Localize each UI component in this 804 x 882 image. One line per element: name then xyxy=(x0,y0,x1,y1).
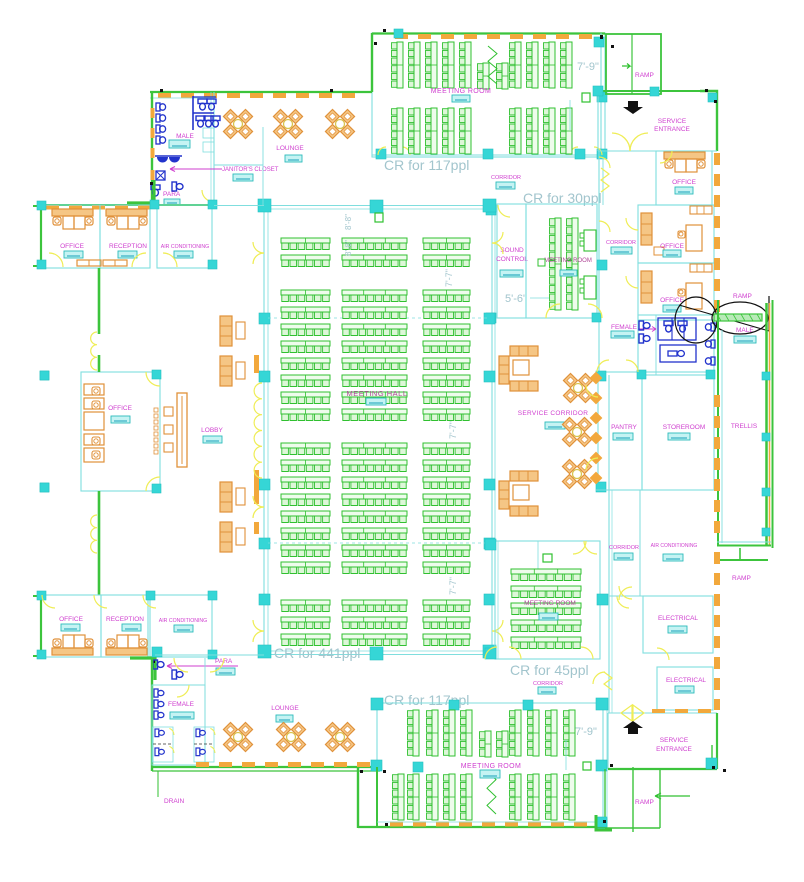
svg-text:CORRIDOR: CORRIDOR xyxy=(609,545,639,551)
svg-text:TRELLIS: TRELLIS xyxy=(731,423,758,430)
svg-text:8'-8": 8'-8" xyxy=(344,214,353,230)
svg-text:FEMALE: FEMALE xyxy=(611,324,638,331)
svg-text:PANTRY: PANTRY xyxy=(611,424,637,431)
svg-text:7'-9": 7'-9" xyxy=(575,726,597,738)
svg-text:5'-6": 5'-6" xyxy=(505,293,527,305)
svg-text:7'-9": 7'-9" xyxy=(577,61,599,73)
svg-text:OFFICE: OFFICE xyxy=(60,243,84,250)
svg-text:AIR CONDITIONING: AIR CONDITIONING xyxy=(161,244,209,250)
svg-text:SOUND: SOUND xyxy=(500,247,524,254)
svg-text:OFFICE: OFFICE xyxy=(108,405,132,412)
svg-text:FEMALE: FEMALE xyxy=(168,701,195,708)
svg-text:MEETING ROOM: MEETING ROOM xyxy=(524,600,576,607)
svg-text:SERVICE: SERVICE xyxy=(658,118,687,125)
svg-text:RAMP: RAMP xyxy=(732,575,751,582)
svg-text:CR for 45ppl: CR for 45ppl xyxy=(510,662,589,678)
svg-text:RAMP: RAMP xyxy=(635,72,654,79)
svg-text:AIR CONDITIONING: AIR CONDITIONING xyxy=(159,618,207,624)
svg-text:RECEPTION: RECEPTION xyxy=(106,616,144,623)
svg-text:CR for 117ppl: CR for 117ppl xyxy=(384,157,469,173)
svg-text:JANITOR'S CLOSET: JANITOR'S CLOSET xyxy=(222,167,279,173)
svg-text:CONTROL: CONTROL xyxy=(496,256,528,263)
svg-text:8'-8": 8'-8" xyxy=(344,240,353,256)
svg-text:LOUNGE: LOUNGE xyxy=(271,705,299,712)
svg-text:LOUNGE: LOUNGE xyxy=(276,145,304,152)
svg-text:MEETING ROOM: MEETING ROOM xyxy=(431,88,491,95)
svg-text:RAMP: RAMP xyxy=(635,799,654,806)
svg-text:7'-7": 7'-7" xyxy=(448,421,458,439)
svg-text:7'-7": 7'-7" xyxy=(448,577,458,595)
svg-text:CR for 441ppl: CR for 441ppl xyxy=(274,645,360,661)
svg-text:LOBBY: LOBBY xyxy=(201,427,223,434)
svg-text:MEETING ROOM: MEETING ROOM xyxy=(544,258,592,264)
svg-text:DRAIN: DRAIN xyxy=(164,798,185,805)
svg-text:ENTRANCE: ENTRANCE xyxy=(656,746,692,753)
svg-text:SERVICE CORRIDOR: SERVICE CORRIDOR xyxy=(518,410,588,417)
svg-text:ENTRANCE: ENTRANCE xyxy=(654,126,690,133)
svg-text:STOREROOM: STOREROOM xyxy=(663,424,706,431)
svg-text:CORRIDOR: CORRIDOR xyxy=(606,240,636,246)
svg-text:OFFICE: OFFICE xyxy=(59,616,83,623)
svg-text:OFFICE: OFFICE xyxy=(660,297,684,304)
svg-text:PARA: PARA xyxy=(163,191,181,198)
svg-text:ELECTRICAL: ELECTRICAL xyxy=(658,615,698,622)
svg-text:OFFICE: OFFICE xyxy=(660,243,684,250)
svg-text:7'-7": 7'-7" xyxy=(444,269,454,287)
svg-text:MALE: MALE xyxy=(176,133,194,140)
svg-text:MEETING HALL: MEETING HALL xyxy=(346,389,407,398)
svg-text:MEETING ROOM: MEETING ROOM xyxy=(461,763,521,770)
svg-text:SERVICE: SERVICE xyxy=(660,737,689,744)
svg-text:CORRIDOR: CORRIDOR xyxy=(533,681,563,687)
svg-text:CORRIDOR: CORRIDOR xyxy=(491,175,521,181)
svg-text:RAMP: RAMP xyxy=(733,293,752,300)
svg-text:ELECTRICAL: ELECTRICAL xyxy=(666,677,706,684)
svg-text:OFFICE: OFFICE xyxy=(672,179,696,186)
svg-text:RECEPTION: RECEPTION xyxy=(109,243,147,250)
svg-text:AIR CONDITIONING: AIR CONDITIONING xyxy=(651,543,698,549)
